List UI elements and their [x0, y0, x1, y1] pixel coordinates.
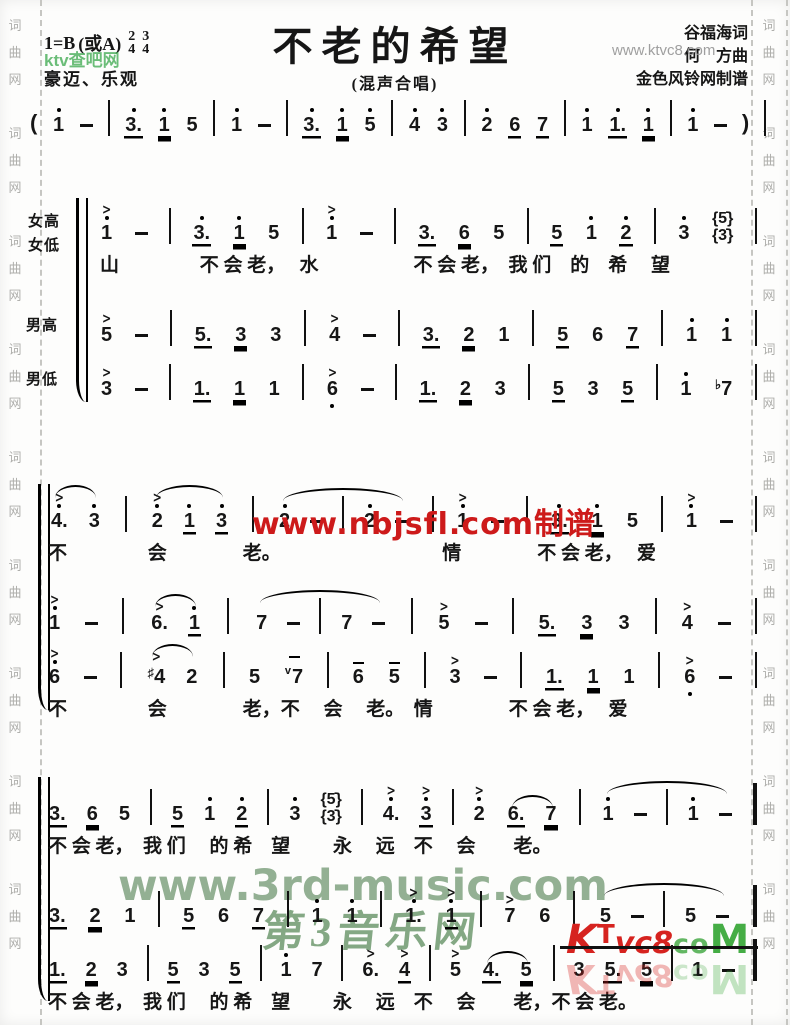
octave-dot-above: [350, 899, 354, 903]
barline: [227, 598, 229, 634]
accent-mark: >: [153, 492, 162, 505]
barline: [260, 945, 262, 981]
barline: [755, 364, 757, 400]
note-digit: 6.: [361, 959, 380, 981]
chord-note: {3̇}: [320, 808, 341, 825]
note: 7: [255, 612, 268, 634]
octave-dot-above: [132, 108, 136, 112]
tenuto-mark: [389, 662, 400, 665]
note-digit: 1: [602, 803, 615, 825]
octave-dot-above: [440, 108, 444, 112]
note-digit: 2: [480, 114, 493, 136]
note: 2: [88, 905, 101, 927]
octave-dot-above: [200, 216, 204, 220]
note: 1: [123, 905, 136, 927]
note: 5: [118, 803, 131, 825]
barline: [302, 364, 304, 400]
accent-mark: >: [50, 594, 59, 607]
note-digit: 3.: [192, 222, 211, 244]
note-digit: 1: [445, 905, 458, 927]
note: >6: [326, 368, 339, 400]
duration-dash: [258, 124, 271, 127]
watermark-ktv-chaba: ktv查吧网: [44, 46, 120, 71]
barline: [341, 945, 343, 981]
octave-dot-above: [310, 108, 314, 112]
note: 1: [233, 378, 246, 400]
note: 3.: [124, 107, 143, 136]
barline: [223, 652, 225, 688]
octave-dot-above: [192, 606, 196, 610]
note-digit: 1: [687, 803, 700, 825]
note: >2: [151, 493, 164, 532]
note-digit: 1: [52, 114, 65, 136]
duration-dash: [720, 520, 733, 523]
note-digit: 6: [538, 905, 551, 927]
duration-dash: [475, 622, 488, 625]
duration-dash: [135, 334, 148, 337]
chord: {5̇}{3̇}: [320, 791, 341, 825]
note: 3.: [48, 803, 67, 825]
note: 3.: [192, 215, 211, 244]
accent-mark: >: [439, 601, 448, 614]
note: 1: [336, 107, 349, 136]
barline: [755, 208, 757, 244]
barline: [125, 496, 127, 532]
barline: [666, 789, 668, 825]
note: >4: [398, 949, 411, 981]
note: >1: [685, 493, 698, 532]
note: 6: [217, 905, 230, 927]
logo-strike-line: [560, 946, 758, 949]
note-digit: 7: [310, 959, 323, 981]
octave-dot-above: [684, 372, 688, 376]
note-digit: 4.: [382, 803, 401, 825]
note-digit: 3.: [302, 114, 321, 136]
note-digit: 1: [123, 905, 136, 927]
note: 1: [587, 666, 600, 688]
note: 1: [233, 215, 246, 244]
duration-dash: [135, 232, 148, 235]
barline: [380, 891, 382, 927]
octave-dot-above: [235, 108, 239, 112]
note: ♭7: [714, 374, 733, 400]
barline: [302, 208, 304, 244]
note-digit: 1: [587, 666, 600, 688]
note: 1.: [545, 666, 564, 688]
barline: [398, 310, 400, 346]
note: 3: [288, 796, 301, 825]
note-digit: 7: [536, 114, 549, 136]
accent-mark: >: [102, 313, 111, 326]
music-line: >13.15>13.655123{5̇}{3̇}: [100, 192, 757, 244]
note-digit: 5: [552, 378, 565, 400]
note-digit: 3: [436, 114, 449, 136]
note: 5: [552, 378, 565, 400]
note: 1: [642, 107, 655, 136]
octave-dot-above: [340, 108, 344, 112]
octave-dot-above: [315, 899, 319, 903]
note-digit: 6: [86, 803, 99, 825]
note-digit: 6: [508, 114, 521, 136]
note-digit: 2: [473, 803, 486, 825]
note-digit: 6.: [507, 803, 526, 825]
note: 2: [480, 107, 493, 136]
accent-mark: >: [327, 204, 336, 217]
note: 2: [85, 959, 98, 981]
note: 1: [203, 796, 216, 825]
note: 4.: [482, 959, 501, 981]
note-digit: 3: [586, 378, 599, 400]
note-digit: 2: [185, 666, 198, 688]
note-digit: 3.: [418, 222, 437, 244]
note: >3: [100, 368, 113, 400]
note: 5: [267, 222, 280, 244]
note: >3: [448, 656, 461, 688]
duration-dash: [718, 622, 731, 625]
intro-music-line: (13.1513.154326711.11): [30, 88, 766, 136]
note: 3: [494, 378, 507, 400]
system-1-bracket: [76, 198, 88, 402]
note: 5: [167, 959, 180, 981]
barline: [755, 652, 757, 688]
barline: [327, 652, 329, 688]
note-digit: 5: [100, 324, 113, 346]
note: 2: [619, 215, 632, 244]
duration-dash: [360, 232, 373, 235]
note-digit: 1: [230, 114, 243, 136]
note-digit: ♯4: [147, 662, 167, 688]
barline: [267, 789, 269, 825]
watermark-nbjsfl: www.nbjsfl.com制谱: [252, 499, 596, 543]
note: 4: [408, 107, 421, 136]
tenuto-mark: [353, 662, 364, 665]
note-digit: 1.: [608, 114, 627, 136]
note: 5: [520, 959, 533, 981]
note-digit: 5: [267, 222, 280, 244]
note: 7: [544, 803, 557, 825]
accent-mark: >: [328, 367, 337, 380]
note: 5: [182, 905, 195, 927]
duration-dash: [719, 813, 732, 816]
note: 6: [538, 905, 551, 927]
note: 3: [580, 612, 593, 634]
note-digit: 1: [685, 510, 698, 532]
duration-dash: [84, 676, 97, 679]
music-line: 3.655123{5̇}{3̇}>4.>3>26.711: [48, 773, 757, 825]
barline: [655, 598, 657, 634]
duration-dash: [363, 334, 376, 337]
octave-dot-above: [220, 504, 224, 508]
accent-mark: >: [330, 313, 339, 326]
note-digit: 3: [215, 510, 228, 532]
note: >1: [48, 595, 61, 634]
note-digit: 6: [48, 666, 61, 688]
chord-note: {5̇}: [712, 210, 733, 227]
note-digit: 7: [252, 905, 265, 927]
note: >4: [328, 314, 341, 346]
note: 1.: [193, 378, 212, 400]
lyrics-line: 不 会 老。 情 不 会 老， 爱: [48, 540, 757, 568]
note-digit: 3.: [48, 905, 67, 927]
note-digit: 5: [167, 959, 180, 981]
note: 1: [679, 371, 692, 400]
note: 3: [215, 503, 228, 532]
note: 1: [345, 898, 358, 927]
note: 5: [185, 114, 198, 136]
barline: [755, 310, 757, 346]
note-digit: 4: [681, 612, 694, 634]
note-digit: 3.: [422, 324, 441, 346]
note-digit: 5.: [538, 612, 557, 634]
note: 3.: [302, 107, 321, 136]
note: 7: [252, 905, 265, 927]
lyrics-line: 不 会 老，不 会 老。 情 不 会 老， 爱: [48, 696, 757, 724]
note-digit: 1: [622, 666, 635, 688]
note: 2: [185, 666, 198, 688]
parenthesis: ): [742, 110, 749, 136]
note: 1: [268, 378, 281, 400]
note: >1: [100, 205, 113, 244]
note: 3.: [48, 905, 67, 927]
accent-mark: >: [50, 648, 59, 661]
note-digit: 1.: [419, 378, 438, 400]
accent-mark: >: [409, 887, 418, 900]
breath-mark: v: [285, 665, 291, 677]
barline: [480, 891, 482, 927]
note: 3: [88, 503, 101, 532]
voice-label-bass: 男低: [26, 368, 58, 389]
chord-note: {5̇}: [320, 791, 341, 808]
note-digit: 5: [363, 114, 376, 136]
tie-group: >213: [149, 493, 230, 532]
accent-mark: >: [451, 948, 460, 961]
note: 1: [311, 898, 324, 927]
voice-label-alto: 女低: [28, 234, 60, 255]
note: 5.: [194, 324, 213, 346]
note: 6: [591, 324, 604, 346]
note-digit: 1: [203, 803, 216, 825]
right-outer-dashed-line: [786, 0, 788, 1025]
octave-dot-above: [691, 797, 695, 801]
flat-sign: ♭: [715, 377, 721, 392]
accent-mark: >: [155, 601, 164, 614]
accent-mark: >: [387, 785, 396, 798]
barline: [532, 310, 534, 346]
octave-dot-above: [606, 797, 610, 801]
note: >4.: [50, 493, 69, 532]
note-digit: 1: [345, 905, 358, 927]
duration-dash: [714, 124, 727, 127]
note-digit: 4.: [50, 510, 69, 532]
barline: [764, 100, 766, 136]
note-digit: 1: [336, 114, 349, 136]
note-digit: 4.: [482, 959, 501, 981]
note-digit: 5: [388, 666, 401, 688]
note: 3: [198, 959, 211, 981]
note-digit: 5: [626, 510, 639, 532]
barline: [394, 208, 396, 244]
octave-dot-above: [187, 504, 191, 508]
note: 6: [508, 114, 521, 136]
note: 1: [685, 317, 698, 346]
note-digit: 1: [158, 114, 171, 136]
accent-mark: >: [55, 492, 64, 505]
note: 1: [52, 107, 65, 136]
note: >5: [437, 602, 450, 634]
duration-dash: [85, 622, 98, 625]
note-digit: 1: [581, 114, 594, 136]
note: >4.: [382, 786, 401, 825]
barline: [656, 364, 658, 400]
barline: [528, 364, 530, 400]
note: 7: [310, 959, 323, 981]
accent-mark: >: [400, 948, 409, 961]
barline: [527, 208, 529, 244]
music-line: >1>6.177>55.33>4: [48, 582, 757, 634]
note-digit: 3: [100, 378, 113, 400]
note-digit: 3: [580, 612, 593, 634]
watermark-ktvc8-url: www.ktvc8.com: [612, 42, 715, 59]
accent-mark: >: [447, 887, 456, 900]
note-digit: 5: [449, 959, 462, 981]
note-digit: 2: [235, 803, 248, 825]
barline: [755, 598, 757, 634]
accent-mark: >: [366, 948, 375, 961]
octave-dot-above: [284, 953, 288, 957]
octave-dot-above: [413, 108, 417, 112]
accent-mark: >: [450, 655, 459, 668]
barline: [361, 789, 363, 825]
note-digit: 5: [229, 959, 242, 981]
final-barline: [753, 783, 757, 825]
note-digit: 7: [255, 612, 268, 634]
note-digit: 4: [328, 324, 341, 346]
parenthesis: (: [30, 110, 37, 136]
accent-mark: >: [102, 367, 111, 380]
chord-note: {3̇}: [712, 227, 733, 244]
octave-dot-above: [368, 108, 372, 112]
barline: [553, 945, 555, 981]
note-digit: 6: [326, 378, 339, 400]
note: 3: [116, 959, 129, 981]
note-digit: 1: [279, 959, 292, 981]
note-digit: 6: [458, 222, 471, 244]
note: 1.: [419, 378, 438, 400]
note: >3: [419, 786, 432, 825]
final-barline: [753, 885, 757, 927]
barline: [520, 652, 522, 688]
note-digit: 6: [591, 324, 604, 346]
left-edge-watermark-text: 词 曲 网 词 曲 网 词 曲 网 词 曲 网 词 曲 网 词 曲 网 词 曲 …: [5, 12, 25, 957]
note-digit: 2: [85, 959, 98, 981]
note: >7: [503, 895, 516, 927]
note-digit: 1: [325, 222, 338, 244]
note-digit: 6.: [150, 612, 169, 634]
note-digit: 6: [352, 666, 365, 688]
note: >6.: [150, 602, 169, 634]
note-digit: 1: [497, 324, 510, 346]
note-digit: 1: [679, 378, 692, 400]
chord: {5̇}{3̇}: [712, 210, 733, 244]
note: >6: [683, 656, 696, 688]
note-digit: 5.: [194, 324, 213, 346]
barline: [512, 598, 514, 634]
barline: [122, 598, 124, 634]
octave-dot-above: [589, 216, 593, 220]
note-digit: 2: [459, 378, 472, 400]
tenuto-mark: [289, 656, 300, 659]
note-digit: 5: [182, 905, 195, 927]
note-digit: 1: [642, 114, 655, 136]
lyrics-line: 山 不 会 老， 水 不 会 老， 我 们 的 希 望: [100, 252, 757, 280]
note-digit: 5: [171, 803, 184, 825]
right-edge-watermark-text: 词 曲 网 词 曲 网 词 曲 网 词 曲 网 词 曲 网 词 曲 网 词 曲 …: [759, 12, 779, 957]
ktvc8-logo-reflection: KTvc8coM: [566, 950, 751, 1003]
barline: [579, 789, 581, 825]
barline: [654, 208, 656, 244]
accent-mark: >: [683, 601, 692, 614]
note: 1.: [48, 959, 67, 981]
note-digit: 1: [100, 222, 113, 244]
note: >1: [445, 888, 458, 927]
duration-dash: [287, 622, 300, 625]
note-digit: ♭7: [714, 374, 733, 400]
note: 1: [188, 605, 201, 634]
tie-group: 6.7: [505, 803, 560, 825]
accent-mark: >: [475, 785, 484, 798]
note-digit: 1: [268, 378, 281, 400]
note-digit: 1: [585, 222, 598, 244]
barline: [411, 598, 413, 634]
note-digit: 5: [492, 222, 505, 244]
accent-mark: >: [102, 204, 111, 217]
lyrics-line: 不 会 老， 我 们 的 希 望 永 远 不 会 老。: [48, 833, 757, 861]
voice-label-soprano: 女高: [28, 210, 60, 231]
note: 3: [234, 324, 247, 346]
octave-dot-above: [616, 108, 620, 112]
duration-dash: [634, 813, 647, 816]
note-digit: 1.: [193, 378, 212, 400]
note: 5.: [538, 612, 557, 634]
duration-dash: [484, 676, 497, 679]
note: 5: [248, 666, 261, 688]
note-digit: 5: [118, 803, 131, 825]
octave-dot-above: [237, 216, 241, 220]
sharp-sign: ♯: [148, 665, 155, 680]
barline: [286, 100, 288, 136]
octave-dot-above: [162, 108, 166, 112]
accent-mark: >: [421, 785, 430, 798]
octave-dot-above: [208, 797, 212, 801]
note-digit: 2: [462, 324, 475, 346]
note: 1: [602, 796, 615, 825]
note-digit: 6: [217, 905, 230, 927]
music-line: >55.33>43.2156711: [100, 294, 757, 346]
note: 1: [279, 952, 292, 981]
note-digit: 2: [151, 510, 164, 532]
note: 1: [720, 317, 733, 346]
music-line: >31.11>61.235351♭7: [100, 348, 757, 400]
note: 5: [550, 222, 563, 244]
barline: [108, 100, 110, 136]
note: 1: [686, 107, 699, 136]
tie-group: >4.3: [48, 493, 103, 532]
barline: [391, 100, 393, 136]
barline: [661, 496, 663, 532]
note-digit: 5: [437, 612, 450, 634]
note-digit: 3: [116, 959, 129, 981]
note-digit: 7: [340, 612, 353, 634]
